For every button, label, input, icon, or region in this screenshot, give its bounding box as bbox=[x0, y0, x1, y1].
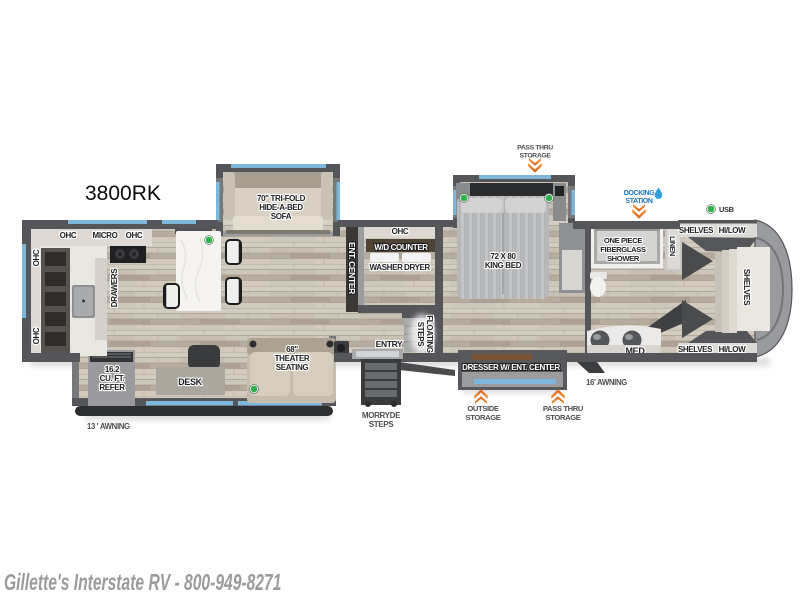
svg-text:3800RK: 3800RK bbox=[85, 182, 161, 205]
svg-text:DESK: DESK bbox=[178, 377, 202, 387]
svg-text:USB: USB bbox=[719, 205, 734, 214]
svg-text:DRAWERS: DRAWERS bbox=[110, 268, 119, 307]
svg-text:16' AWNING: 16' AWNING bbox=[586, 378, 627, 387]
svg-text:SHELVES: SHELVES bbox=[679, 226, 714, 235]
svg-text:HI/LOW: HI/LOW bbox=[719, 226, 747, 235]
svg-text:PASS THRUSTORAGE: PASS THRUSTORAGE bbox=[543, 404, 584, 422]
svg-text:OUTSIDESTORAGE: OUTSIDESTORAGE bbox=[466, 404, 501, 422]
svg-text:OHC: OHC bbox=[60, 231, 77, 240]
svg-text:ENTRY: ENTRY bbox=[376, 339, 403, 349]
svg-text:LINEN: LINEN bbox=[668, 236, 677, 256]
svg-text:PASS THRUSTORAGE: PASS THRUSTORAGE bbox=[517, 145, 553, 160]
svg-text:MICRO: MICRO bbox=[93, 231, 118, 240]
svg-text:OHC: OHC bbox=[392, 227, 409, 236]
svg-text:W/D COUNTER: W/D COUNTER bbox=[374, 243, 428, 252]
svg-text:SHELVES: SHELVES bbox=[742, 269, 752, 306]
svg-text:WASHERDRYER: WASHERDRYER bbox=[369, 263, 430, 272]
svg-text:DOCKINGSTATION: DOCKINGSTATION bbox=[624, 190, 656, 205]
svg-text:DRESSER W/ ENT. CENTER: DRESSER W/ ENT. CENTER bbox=[462, 363, 560, 372]
svg-text:OHC: OHC bbox=[32, 327, 41, 344]
svg-text:HI/LOW: HI/LOW bbox=[719, 345, 747, 354]
svg-text:OHC: OHC bbox=[32, 249, 41, 266]
svg-text:OHC: OHC bbox=[126, 231, 143, 240]
svg-text:SHELVES: SHELVES bbox=[678, 345, 713, 354]
svg-text:ENT. CENTER: ENT. CENTER bbox=[347, 242, 357, 294]
svg-text:Gillette's Interstate RV - 800: Gillette's Interstate RV - 800-949-8271 bbox=[4, 570, 281, 596]
svg-text:13 ' AWNING: 13 ' AWNING bbox=[87, 422, 130, 431]
